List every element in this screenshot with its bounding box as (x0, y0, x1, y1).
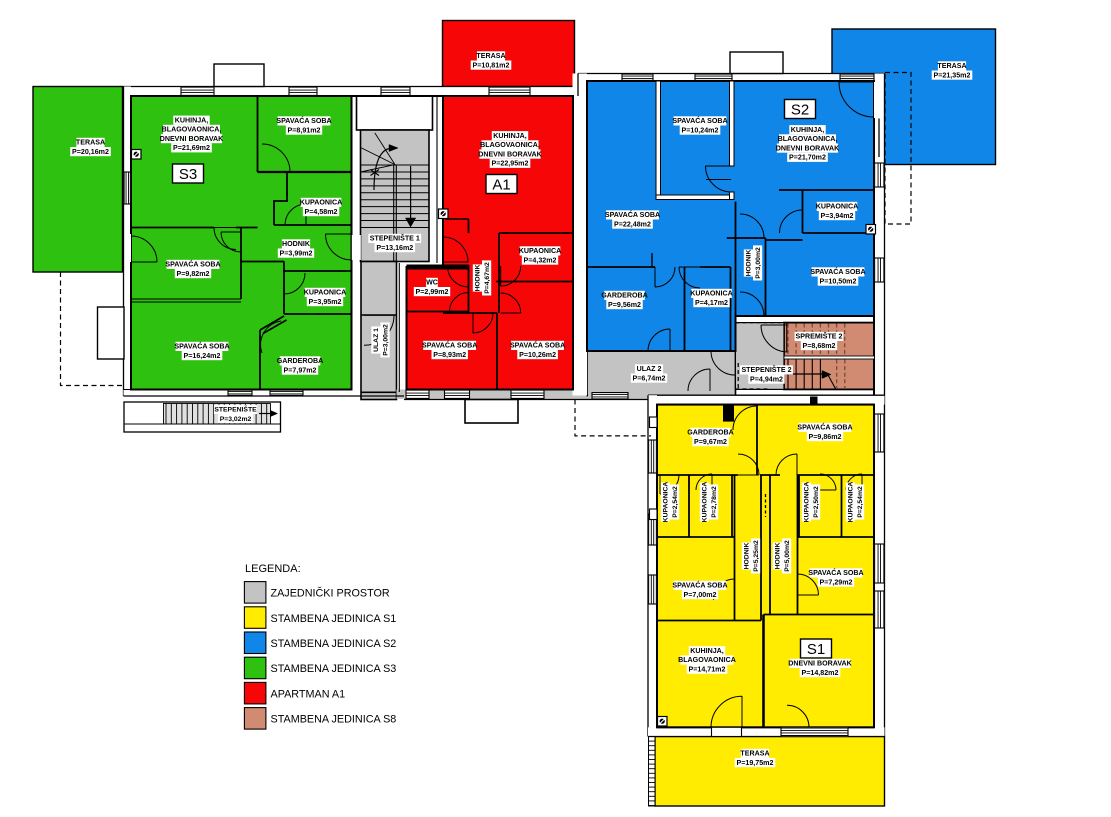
svg-text:STEPENIŠTE 1: STEPENIŠTE 1 (370, 234, 420, 243)
svg-text:SPAVAĆA SOBA: SPAVAĆA SOBA (174, 342, 229, 351)
svg-text:SPAVAĆA SOBA: SPAVAĆA SOBA (797, 423, 852, 432)
svg-text:P=6,74m2: P=6,74m2 (633, 374, 666, 382)
svg-text:ZAJEDNIČKI PROSTOR: ZAJEDNIČKI PROSTOR (271, 587, 390, 600)
svg-text:P=16,24m2: P=16,24m2 (184, 352, 221, 360)
svg-text:KUHINJA,: KUHINJA, (175, 116, 209, 124)
svg-text:P=14,71m2: P=14,71m2 (689, 665, 726, 673)
svg-text:SPAVAĆA SOBA: SPAVAĆA SOBA (422, 341, 477, 350)
svg-text:TERASA: TERASA (76, 139, 105, 147)
svg-text:DNEVNI BORAVAK: DNEVNI BORAVAK (788, 660, 852, 668)
svg-text:P=14,82m2: P=14,82m2 (802, 669, 839, 677)
svg-text:SPAVAĆA SOBA: SPAVAĆA SOBA (276, 116, 331, 125)
svg-text:P=3,00m2: P=3,00m2 (382, 324, 389, 356)
svg-text:APARTMAN A1: APARTMAN A1 (271, 688, 346, 700)
svg-text:P=21,69m2: P=21,69m2 (173, 144, 210, 152)
svg-text:STEPENIŠTE: STEPENIŠTE (214, 405, 257, 414)
svg-text:GARDEROBA: GARDEROBA (601, 292, 648, 300)
svg-text:SPAVAĆA SOBA: SPAVAĆA SOBA (605, 210, 660, 219)
svg-text:HODNIK: HODNIK (475, 265, 482, 292)
svg-text:KUPAONICA: KUPAONICA (519, 247, 561, 255)
svg-text:STAMBENA JEDINICA S3: STAMBENA JEDINICA S3 (271, 663, 397, 675)
svg-text:P=3,94m2: P=3,94m2 (821, 212, 854, 220)
svg-text:P=2,50m2: P=2,50m2 (813, 486, 820, 518)
svg-text:KUPAONICA: KUPAONICA (300, 199, 342, 207)
svg-text:P=10,81m2: P=10,81m2 (473, 61, 510, 69)
svg-text:P=9,86m2: P=9,86m2 (809, 433, 842, 441)
svg-text:KUPAONICA: KUPAONICA (804, 482, 811, 523)
svg-text:P=5,00m2: P=5,00m2 (784, 540, 791, 572)
svg-text:P=10,50m2: P=10,50m2 (820, 277, 857, 285)
svg-text:KUHINJA,: KUHINJA, (690, 647, 724, 655)
svg-text:TERASA: TERASA (740, 750, 769, 758)
svg-text:HODNIK: HODNIK (744, 543, 751, 570)
svg-text:P=22,48m2: P=22,48m2 (614, 220, 651, 228)
svg-text:STEPENIŠTE 2: STEPENIŠTE 2 (741, 365, 791, 374)
svg-text:P=2,99m2: P=2,99m2 (416, 288, 449, 296)
svg-text:KUPAONICA: KUPAONICA (690, 290, 732, 298)
svg-text:KUPAONICA: KUPAONICA (663, 482, 670, 523)
svg-text:BLAGOVAONICA: BLAGOVAONICA (678, 656, 736, 664)
svg-text:P=9,67m2: P=9,67m2 (694, 438, 727, 446)
svg-text:SPREMIŠTE 2: SPREMIŠTE 2 (796, 332, 843, 341)
svg-text:P=5,25m2: P=5,25m2 (753, 540, 760, 572)
svg-text:STAMBENA JEDINICA S8: STAMBENA JEDINICA S8 (271, 714, 397, 726)
svg-text:A1: A1 (492, 176, 510, 193)
svg-text:P=4,17m2: P=4,17m2 (695, 299, 728, 307)
svg-text:S2: S2 (791, 101, 809, 118)
svg-text:P=4,32m2: P=4,32m2 (524, 256, 557, 264)
svg-text:P=7,29m2: P=7,29m2 (820, 578, 853, 586)
svg-text:P=8,68m2: P=8,68m2 (803, 342, 836, 350)
svg-text:P=13,16m2: P=13,16m2 (376, 244, 413, 252)
svg-text:BLAGOVAONICA,: BLAGOVAONICA, (480, 141, 540, 149)
svg-text:SPAVAĆA SOBA: SPAVAĆA SOBA (808, 568, 863, 577)
svg-text:S1: S1 (807, 641, 825, 658)
svg-text:TERASA: TERASA (476, 52, 505, 60)
svg-text:KUPAONICA: KUPAONICA (816, 203, 858, 211)
svg-text:GARDEROBA: GARDEROBA (277, 357, 324, 365)
svg-text:SPAVAĆA SOBA: SPAVAĆA SOBA (672, 116, 727, 125)
svg-text:P=10,26m2: P=10,26m2 (519, 351, 556, 359)
svg-text:HODNIK: HODNIK (775, 543, 782, 570)
svg-text:KUPAONICA: KUPAONICA (304, 289, 346, 297)
svg-text:WC: WC (426, 279, 438, 287)
svg-text:SPAVAĆA SOBA: SPAVAĆA SOBA (810, 267, 865, 276)
svg-text:P=2,54m2: P=2,54m2 (672, 486, 679, 518)
svg-text:P=4,58m2: P=4,58m2 (305, 208, 338, 216)
svg-text:P=4,67m2: P=4,67m2 (484, 262, 491, 294)
svg-text:TERASA: TERASA (937, 62, 966, 70)
svg-text:P=4,94m2: P=4,94m2 (750, 375, 783, 383)
svg-text:P=21,35m2: P=21,35m2 (934, 71, 971, 79)
svg-text:KUHINJA,: KUHINJA, (493, 132, 527, 140)
svg-text:STAMBENA JEDINICA S1: STAMBENA JEDINICA S1 (271, 613, 397, 625)
svg-text:P=19,75m2: P=19,75m2 (737, 759, 774, 767)
svg-text:ULAZ 2: ULAZ 2 (637, 365, 662, 373)
svg-text:P=9,82m2: P=9,82m2 (177, 270, 210, 278)
svg-text:P=8,93m2: P=8,93m2 (433, 351, 466, 359)
svg-text:P=3,02m2: P=3,02m2 (220, 416, 252, 423)
svg-text:HODNIK: HODNIK (746, 250, 753, 277)
svg-text:SPAVAĆA SOBA: SPAVAĆA SOBA (510, 341, 565, 350)
svg-text:KUHINJA,: KUHINJA, (791, 126, 825, 134)
svg-text:SPAVAĆA SOBA: SPAVAĆA SOBA (165, 260, 220, 269)
svg-text:KUPAONICA: KUPAONICA (848, 482, 855, 523)
svg-text:DNEVNI BORAVAK: DNEVNI BORAVAK (478, 150, 542, 158)
svg-text:P=2,54m2: P=2,54m2 (857, 486, 864, 518)
svg-text:P=7,97m2: P=7,97m2 (284, 366, 317, 374)
svg-text:STAMBENA JEDINICA S2: STAMBENA JEDINICA S2 (271, 638, 397, 650)
svg-text:ULAZ 1: ULAZ 1 (373, 328, 380, 352)
svg-text:P=3,99m2: P=3,99m2 (280, 249, 313, 257)
svg-text:LEGENDA:: LEGENDA: (245, 563, 301, 575)
svg-text:P=8,91m2: P=8,91m2 (288, 126, 321, 134)
svg-text:P=20,16m2: P=20,16m2 (72, 148, 109, 156)
svg-text:P=10,24m2: P=10,24m2 (682, 126, 719, 134)
svg-text:P=7,00m2: P=7,00m2 (684, 591, 717, 599)
svg-text:P=22,95m2: P=22,95m2 (492, 160, 529, 168)
svg-text:GARDEROBA: GARDEROBA (687, 429, 734, 437)
svg-text:BLAGOVAONICA,: BLAGOVAONICA, (778, 135, 838, 143)
svg-text:S3: S3 (179, 166, 197, 183)
svg-text:DNEVNI BORAVAK: DNEVNI BORAVAK (776, 144, 840, 152)
svg-text:KUPAONICA: KUPAONICA (702, 482, 709, 523)
svg-text:DNEVNI BORAVAK: DNEVNI BORAVAK (160, 135, 224, 143)
svg-text:P=21,70m2: P=21,70m2 (789, 154, 826, 162)
svg-text:P=3,95m2: P=3,95m2 (309, 298, 342, 306)
svg-text:BLAGOVAONICA,: BLAGOVAONICA, (162, 126, 222, 134)
svg-text:SPAVAĆA SOBA: SPAVAĆA SOBA (672, 581, 727, 590)
svg-text:HODNIK: HODNIK (282, 240, 311, 248)
svg-text:P=2,78m2: P=2,78m2 (711, 486, 718, 518)
svg-text:P=3,00m2: P=3,00m2 (755, 247, 762, 279)
svg-text:P=9,56m2: P=9,56m2 (608, 301, 641, 309)
